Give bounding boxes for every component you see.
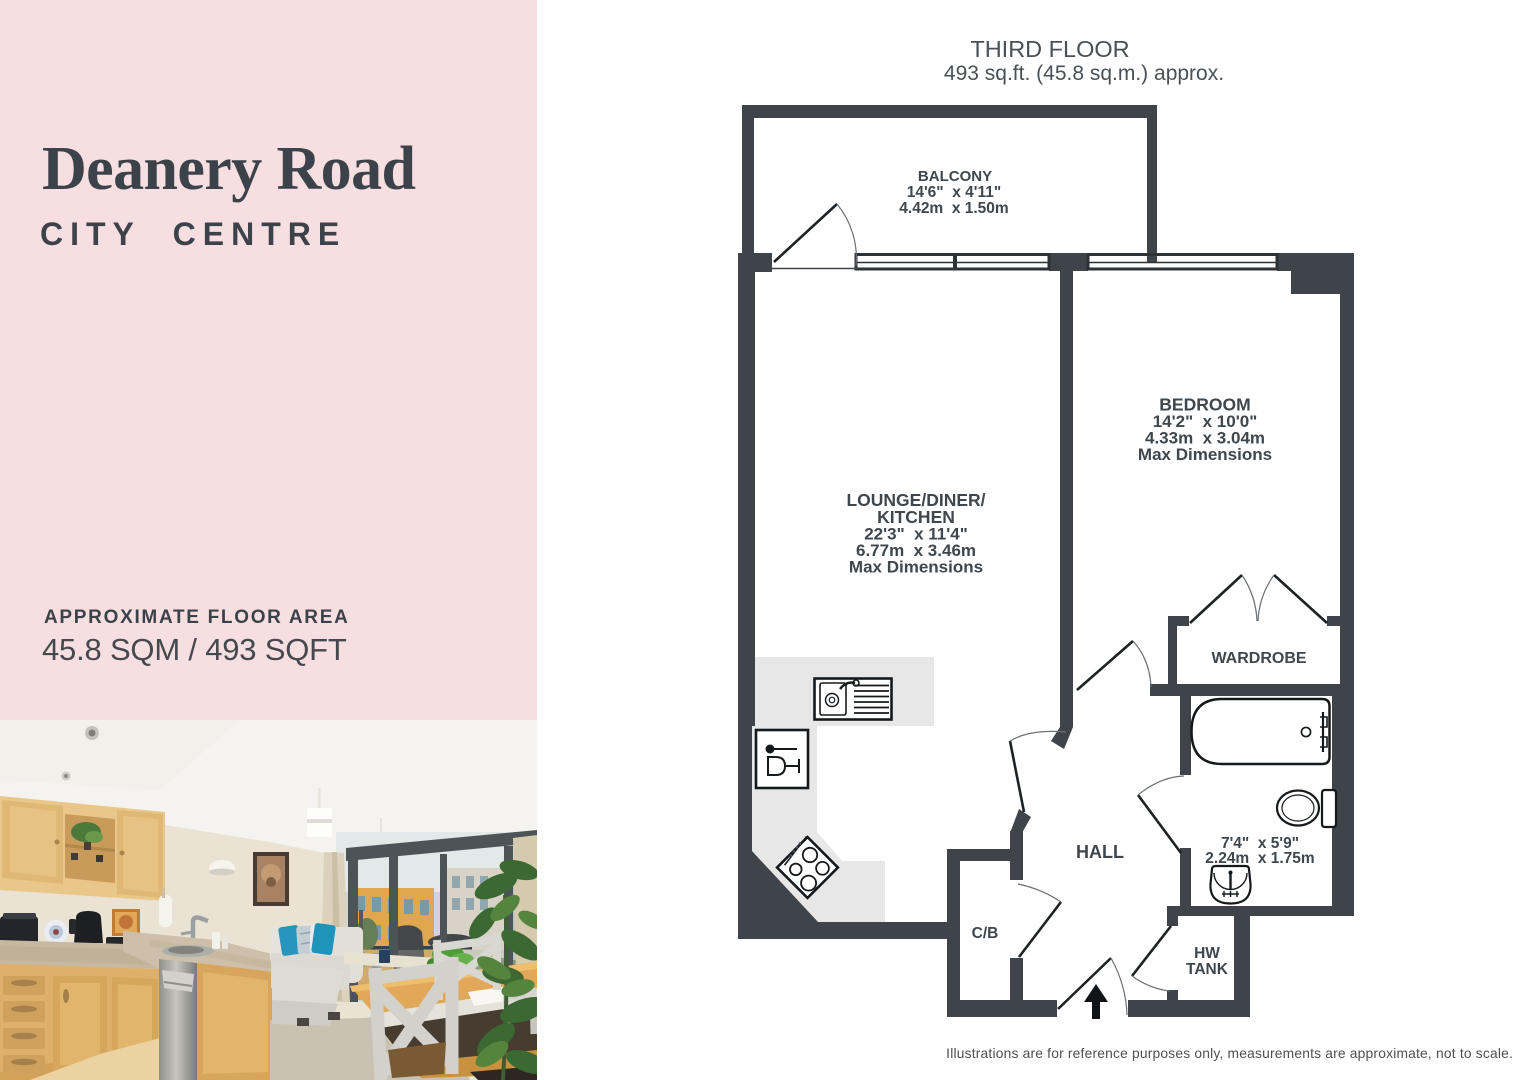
svg-text:493 sq.ft. (45.8 sq.m.) approx: 493 sq.ft. (45.8 sq.m.) approx. bbox=[944, 62, 1224, 85]
svg-text:14'6" x 4'11": 14'6" x 4'11" bbox=[907, 184, 1001, 201]
svg-text:4.42m x 1.50m: 4.42m x 1.50m bbox=[899, 200, 1008, 217]
svg-text:2.24m x 1.75m: 2.24m x 1.75m bbox=[1205, 850, 1314, 867]
svg-text:Max Dimensions: Max Dimensions bbox=[1138, 445, 1272, 464]
svg-text:Illustrations are for referenc: Illustrations are for reference purposes… bbox=[946, 1046, 1513, 1061]
svg-text:THIRD FLOOR: THIRD FLOOR bbox=[970, 36, 1129, 62]
svg-text:HALL: HALL bbox=[1076, 842, 1124, 862]
svg-text:TANK: TANK bbox=[1186, 961, 1229, 978]
svg-text:WARDROBE: WARDROBE bbox=[1211, 650, 1306, 667]
svg-text:BALCONY: BALCONY bbox=[918, 168, 992, 185]
svg-text:Max Dimensions: Max Dimensions bbox=[849, 558, 983, 577]
svg-text:HW: HW bbox=[1194, 945, 1220, 962]
svg-text:C/B: C/B bbox=[972, 925, 999, 942]
